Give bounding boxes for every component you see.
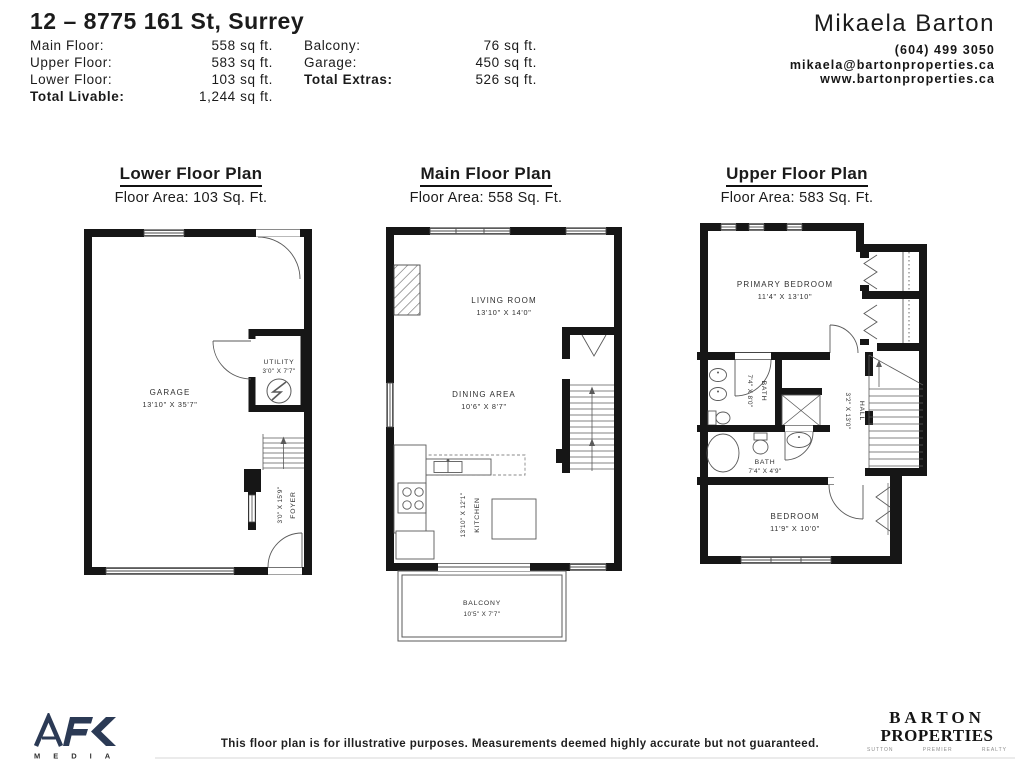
svg-text:3'0" X 15'9": 3'0" X 15'9"	[277, 487, 284, 524]
room-label: UTILITY	[264, 359, 295, 366]
wall-stub	[556, 449, 564, 463]
upper-floor-plan-drawing: PRIMARY BEDROOM 11'4" X 13'10" BATH 7'4"…	[697, 215, 931, 573]
agent-email: mikaela@bartonproperties.ca	[790, 58, 995, 73]
stat-label: Balcony:	[304, 37, 361, 54]
stat-value: 103 sq ft.	[211, 71, 273, 88]
stat-label: Total Extras:	[304, 71, 393, 88]
stat-value: 526 sq ft.	[475, 71, 537, 88]
electrical-panel-icon	[267, 379, 291, 403]
svg-text:FOYER: FOYER	[290, 491, 297, 518]
room-label: DINING AREA	[452, 390, 516, 399]
stat-value: 583 sq ft.	[211, 54, 273, 71]
svg-text:3'2" X 13'0": 3'2" X 13'0"	[844, 393, 851, 430]
stat-value: 450 sq ft.	[475, 54, 537, 71]
room-label: LIVING ROOM	[471, 296, 536, 305]
stat-row: Garage:450 sq ft.	[304, 54, 537, 71]
upper-floor-title-block: Upper Floor Plan Floor Area: 583 Sq. Ft.	[672, 164, 922, 206]
stat-label: Upper Floor:	[30, 54, 112, 71]
room-dims: 11'4" X 13'10"	[758, 292, 813, 301]
room-dims: 10'5" X 7'7"	[464, 611, 501, 618]
afk-letter-a	[36, 717, 61, 746]
room-dims: 10'6" X 8'7"	[461, 402, 507, 411]
window	[387, 383, 394, 427]
svg-text:BATH: BATH	[755, 459, 776, 466]
main-floor-title-block: Main Floor Plan Floor Area: 558 Sq. Ft.	[361, 164, 611, 206]
room-dims: 3'0" X 7'7"	[263, 368, 296, 375]
agent-info: Mikaela Barton (604) 499 3050 mikaela@ba…	[790, 10, 995, 87]
agent-website: www.bartonproperties.ca	[790, 72, 995, 87]
sliding-door	[438, 564, 530, 575]
barton-logo-line1: BARTON	[862, 709, 1012, 727]
window	[144, 230, 184, 237]
stat-row: Total Extras:526 sq ft.	[304, 71, 537, 88]
stat-label: Total Livable:	[30, 88, 124, 105]
stat-row: Main Floor:558 sq ft.	[30, 37, 273, 54]
room-label: GARAGE	[150, 388, 191, 397]
floor-area-stats-right: Balcony:76 sq ft. Garage:450 sq ft. Tota…	[304, 37, 537, 88]
balcony: BALCONY 10'5" X 7'7"	[398, 564, 566, 641]
afk-media-logo: MEDIA	[31, 713, 135, 761]
lower-floor-area: Floor Area: 103 Sq. Ft.	[66, 190, 316, 206]
stat-label: Main Floor:	[30, 37, 104, 54]
barton-properties-logo: BARTON PROPERTIES SUTTON PREMIER REALTY	[862, 709, 1012, 753]
stat-row: Balcony:76 sq ft.	[304, 37, 537, 54]
room-dims: 11'9" X 10'0"	[770, 524, 820, 533]
room-label: BEDROOM	[770, 512, 819, 521]
fireplace	[394, 265, 420, 315]
svg-text:13'10" X 12'1": 13'10" X 12'1"	[460, 493, 467, 538]
barton-sub-word: SUTTON	[867, 747, 893, 753]
svg-text:HALL: HALL	[858, 401, 865, 421]
barton-sub-word: REALTY	[982, 747, 1007, 753]
interior-wall	[865, 468, 923, 476]
floor-area-stats-left: Main Floor:558 sq ft. Upper Floor:583 sq…	[30, 37, 273, 105]
stat-value: 558 sq ft.	[211, 37, 273, 54]
window	[570, 564, 606, 571]
stat-row: Total Livable:1,244 sq ft.	[30, 88, 273, 105]
stat-label: Lower Floor:	[30, 71, 112, 88]
svg-text:BATH: BATH	[760, 381, 767, 402]
lower-floor-title-block: Lower Floor Plan Floor Area: 103 Sq. Ft.	[66, 164, 316, 206]
window	[741, 557, 831, 564]
svg-text:7'4" X 4'9": 7'4" X 4'9"	[749, 468, 782, 475]
lower-floor-title: Lower Floor Plan	[120, 164, 263, 187]
stat-row: Upper Floor:583 sq ft.	[30, 54, 273, 71]
interior-wall	[697, 477, 834, 485]
property-address: 12 – 8775 161 St, Surrey	[30, 8, 304, 35]
barton-logo-line2: PROPERTIES	[862, 727, 1012, 745]
foyer-wall-window	[248, 492, 256, 530]
disclaimer-text: This floor plan is for illustrative purp…	[190, 738, 850, 750]
upper-floor-title: Upper Floor Plan	[726, 164, 868, 187]
interior-wall	[562, 327, 570, 359]
wall-stub	[244, 469, 261, 492]
agent-name: Mikaela Barton	[790, 10, 995, 38]
main-floor-plan-drawing: LIVING ROOM 13'10" X 14'0" DINING AREA 1…	[386, 227, 622, 652]
lower-floor-plan-drawing: UTILITY 3'0" X 7'7" FOYER 3'0" X 15'9" G…	[84, 229, 312, 575]
svg-text:7'4" X 8'0": 7'4" X 8'0"	[746, 375, 753, 408]
afk-media-text: MEDIA	[34, 752, 123, 761]
stat-label: Garage:	[304, 54, 357, 71]
garage-door	[106, 568, 234, 575]
main-floor-title: Main Floor Plan	[420, 164, 551, 187]
stat-row: Lower Floor:103 sq ft.	[30, 71, 273, 88]
footer-divider	[155, 757, 1015, 759]
barton-logo-subtext: SUTTON PREMIER REALTY	[862, 745, 1012, 753]
agent-phone: (604) 499 3050	[790, 43, 995, 58]
interior-wall	[890, 476, 898, 560]
barton-sub-word: PREMIER	[923, 747, 953, 753]
room-label: BALCONY	[463, 600, 501, 607]
room-label: PRIMARY BEDROOM	[737, 280, 833, 289]
room-dims: 13'10" X 35'7"	[142, 400, 197, 409]
stat-value: 76 sq ft.	[484, 37, 537, 54]
afk-letter-k	[91, 717, 116, 746]
window	[721, 224, 802, 231]
svg-text:KITCHEN: KITCHEN	[474, 497, 481, 532]
room-dims: 13'10" X 14'0"	[476, 308, 531, 317]
stat-value: 1,244 sq ft.	[199, 88, 273, 105]
main-floor-area: Floor Area: 558 Sq. Ft.	[361, 190, 611, 206]
upper-floor-area: Floor Area: 583 Sq. Ft.	[672, 190, 922, 206]
